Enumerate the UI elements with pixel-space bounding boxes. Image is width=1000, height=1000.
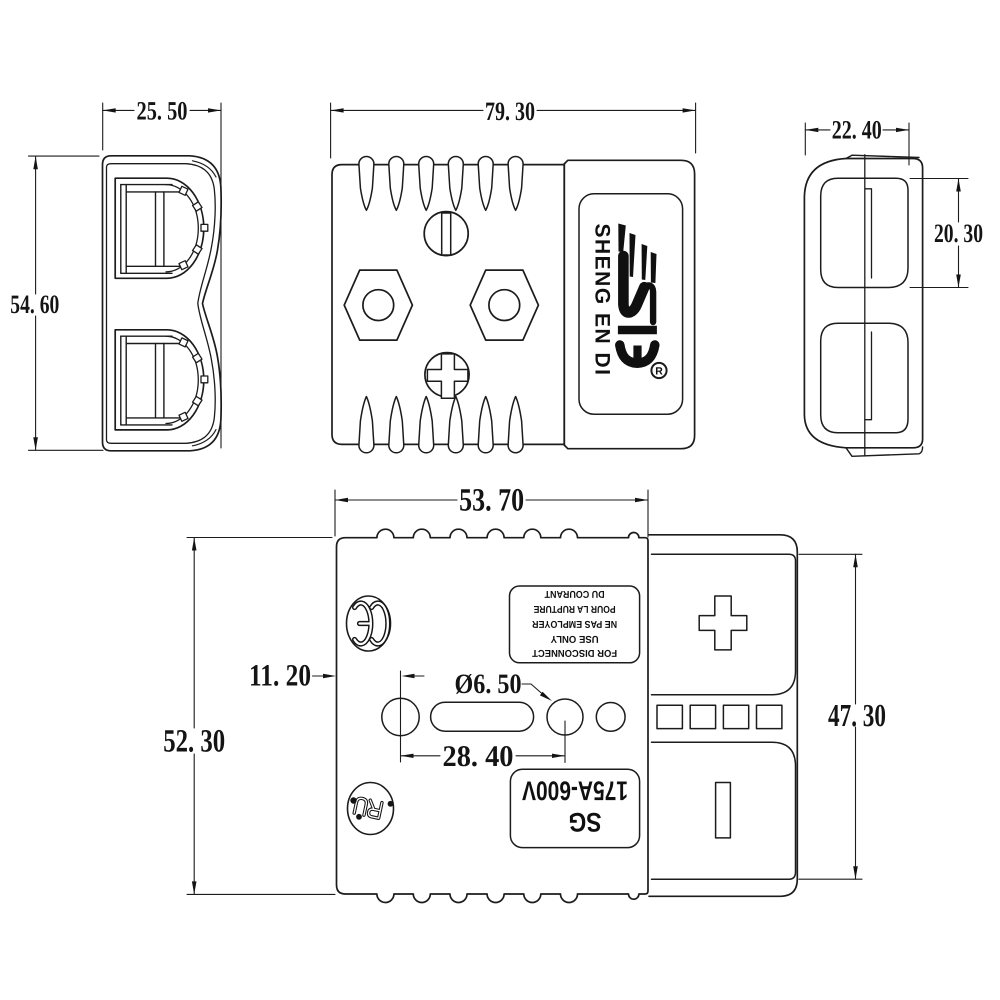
svg-text:54. 60: 54. 60 <box>10 289 59 319</box>
svg-text:SG: SG <box>569 807 602 837</box>
svg-text:25. 50: 25. 50 <box>137 95 188 125</box>
svg-text:28. 40: 28. 40 <box>443 740 514 773</box>
svg-text:POUR LA RUPTURE: POUR LA RUPTURE <box>533 603 615 614</box>
svg-text:53. 70: 53. 70 <box>459 483 524 519</box>
svg-text:SHENG EN DI: SHENG EN DI <box>591 224 614 377</box>
svg-text:FOR DISCONNECT: FOR DISCONNECT <box>532 647 617 658</box>
svg-text:NE PAS EMPLOYER: NE PAS EMPLOYER <box>531 618 617 629</box>
svg-text:Ø6. 50: Ø6. 50 <box>455 669 522 700</box>
svg-text:52. 30: 52. 30 <box>163 724 225 760</box>
svg-text:175A-600V: 175A-600V <box>522 776 628 806</box>
svg-text:47. 30: 47. 30 <box>828 697 886 733</box>
svg-text:USE ONLY: USE ONLY <box>550 633 598 644</box>
svg-text:20. 30: 20. 30 <box>934 218 983 248</box>
svg-text:11. 20: 11. 20 <box>249 658 311 693</box>
svg-text:DU COURANT: DU COURANT <box>545 588 605 599</box>
svg-text:22. 40: 22. 40 <box>832 114 882 144</box>
svg-text:79. 30: 79. 30 <box>485 96 535 126</box>
svg-text:R: R <box>655 366 663 378</box>
